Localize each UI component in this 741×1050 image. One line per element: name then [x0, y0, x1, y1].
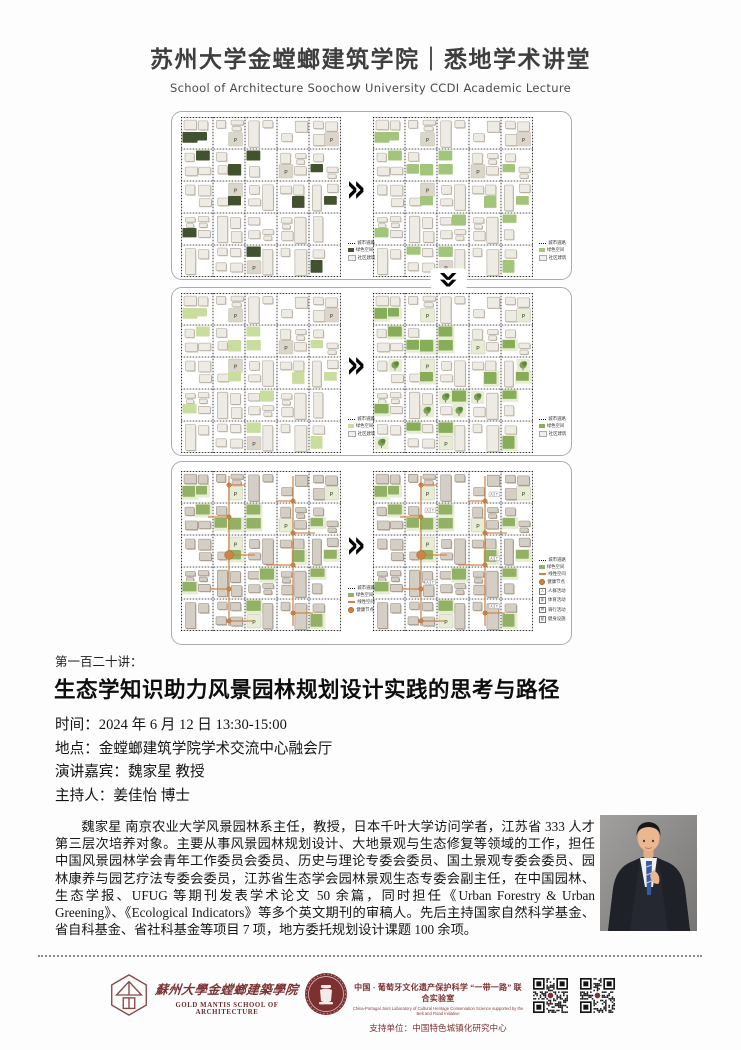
legend-label: 绿色空间 [356, 593, 374, 597]
legend-label: 绿色空间 [356, 424, 374, 428]
legend-building-swatch [539, 255, 547, 261]
stage-down-arrow-icon: » [431, 268, 467, 291]
legend-label: 绿色空间 [547, 565, 565, 569]
svg-text:P: P [284, 524, 288, 530]
legend-label: 骑行活动 [548, 608, 566, 612]
lab-name-cn: 中国 - 葡萄牙文化遗产保护科学 “一带一路” 联合实验室 [352, 982, 524, 1004]
lab-name-en: China-Portugal Joint Laboratory of Cultu… [352, 1006, 524, 1016]
lab-name-block: 中国 - 葡萄牙文化遗产保护科学 “一带一路” 联合实验室 China-Port… [352, 982, 524, 1034]
svg-text:P: P [234, 188, 238, 194]
legend-row-linear: 线性空间 [348, 600, 375, 604]
legend-road-swatch [539, 243, 546, 244]
city-map-after: PPPPP [373, 117, 533, 277]
legend-row-building: 社区建筑 [348, 255, 375, 261]
svg-text:P: P [234, 492, 238, 498]
legend-row-green: 绿色空间 [539, 565, 566, 569]
svg-text:T: T [496, 557, 498, 561]
svg-text:P: P [426, 542, 430, 548]
legend-fitness-swatch: 健 [539, 616, 546, 623]
speaker-bio: 魏家星 南京农业大学风景园林系主任，教授，日本千叶大学访问学者，江苏省 333 … [55, 818, 595, 938]
legend-label: 健身设施 [548, 617, 566, 621]
legend-row-road: 城市道路 [348, 241, 375, 245]
legend-green-swatch [348, 593, 354, 597]
lecture-time: 时间：2024 年 6 月 12 日 13:30-15:00 [55, 714, 332, 738]
legend-row-road: 城市道路 [539, 241, 566, 245]
qr-code-1 [533, 978, 568, 1013]
svg-text:P: P [234, 542, 238, 548]
map-legend: 城市道路绿色空间社区建筑 [348, 417, 375, 437]
legend-road-swatch [348, 419, 355, 420]
svg-text:P: P [284, 346, 288, 352]
svg-text:P: P [330, 138, 334, 144]
legend-label: 线性空间 [548, 572, 566, 576]
city-map-before: PPPPP [181, 117, 341, 277]
legend-green-swatch [348, 248, 354, 252]
legend-people-swatch: 人 [539, 588, 546, 595]
legend-building-swatch [348, 431, 356, 437]
svg-text:P: P [522, 314, 526, 320]
svg-text:P: P [476, 170, 480, 176]
city-map-after: PPPPP [373, 293, 533, 453]
speaker-photo [600, 815, 697, 931]
lecture-speaker: 演讲嘉宾：魏家星 教授 [55, 761, 332, 785]
before-after-arrow-icon: » [334, 345, 378, 384]
school-calligraphy: 蘇州大學金螳螂建築學院 [151, 979, 303, 998]
legend-label: 社区建筑 [358, 432, 376, 436]
svg-text:P: P [330, 492, 334, 498]
svg-text:P: P [444, 442, 448, 448]
school-name-en: GOLD MANTIS SCHOOL OF ARCHITECTURE [152, 1002, 302, 1016]
map-legend: 城市道路绿色空间线性空间健康节点人人群活动体体育活动骑骑行活动健健身设施 [539, 558, 566, 623]
legend-label: 体育活动 [548, 598, 566, 602]
legend-label: 绿色空间 [547, 424, 565, 428]
svg-text:P: P [234, 138, 238, 144]
legend-label: 绿色空间 [547, 248, 565, 252]
map-legend: 城市道路绿色空间线性空间健康节点 [348, 586, 375, 613]
lecture-poster: 苏州大学金螳螂建筑学院｜悉地学术讲堂 School of Architectur… [0, 0, 741, 1050]
legend-building-swatch [539, 431, 547, 437]
legend-label: 城市道路 [357, 241, 375, 245]
legend-row-road: 城市道路 [348, 586, 375, 590]
map-legend: 城市道路绿色空间社区建筑 [348, 241, 375, 261]
legend-linear-swatch [348, 601, 355, 603]
legend-row-green: 绿色空间 [348, 424, 375, 428]
svg-text:P: P [234, 314, 238, 320]
legend-row-building: 社区建筑 [539, 255, 566, 261]
legend-label: 社区建筑 [358, 256, 376, 260]
legend-row-people: 人人群活动 [539, 588, 566, 595]
lecture-series-number: 第一百二十讲： [55, 651, 143, 670]
legend-row-node: 健康节点 [539, 579, 566, 585]
svg-text:P: P [252, 442, 256, 448]
svg-text:T: T [496, 605, 498, 609]
city-map-before: PPPPP [181, 471, 341, 631]
legend-row-fitness: 健健身设施 [539, 616, 566, 623]
legend-green-swatch [539, 248, 545, 252]
diagram-panel-stage-1: PPPPP城市道路绿色空间社区建筑PPPPP城市道路绿色空间社区建筑» [171, 111, 572, 280]
svg-text:T: T [496, 493, 498, 497]
legend-node-swatch [348, 607, 354, 613]
lecture-place: 地点：金螳螂建筑学院学术交流中心融会厅 [55, 738, 332, 762]
page-subtitle: School of Architecture Soochow Universit… [0, 81, 741, 95]
legend-label: 城市道路 [548, 241, 566, 245]
legend-row-green: 绿色空间 [348, 593, 375, 597]
diagram-panel-stage-2: PPPPP城市道路绿色空间社区建筑PPPPP城市道路绿色空间社区建筑» [171, 287, 572, 456]
legend-ride-swatch: 骑 [539, 607, 546, 614]
legend-label: 人群活动 [548, 589, 566, 593]
svg-text:P: P [426, 492, 430, 498]
svg-text:P: P [330, 314, 334, 320]
lecture-host: 主持人：姜佳怡 博士 [55, 785, 332, 809]
svg-text:P: P [476, 524, 480, 530]
legend-label: 社区建筑 [549, 256, 567, 260]
legend-label: 城市道路 [548, 558, 566, 562]
legend-row-road: 城市道路 [539, 417, 566, 421]
svg-text:T: T [432, 581, 434, 585]
svg-text:P: P [426, 314, 430, 320]
legend-label: 线性空间 [357, 600, 375, 604]
svg-text:P: P [234, 364, 238, 370]
legend-row-building: 社区建筑 [539, 431, 566, 437]
legend-row-road: 城市道路 [348, 417, 375, 421]
city-map-before: PPPPP [181, 293, 341, 453]
map-legend: 城市道路绿色空间社区建筑 [539, 417, 566, 437]
legend-row-building: 社区建筑 [348, 431, 375, 437]
svg-text:P: P [426, 138, 430, 144]
svg-text:P: P [284, 170, 288, 176]
city-map-after: PPPPP人T人T人T人T人T [373, 471, 533, 631]
svg-text:P: P [252, 266, 256, 272]
legend-label: 社区建筑 [549, 432, 567, 436]
legend-row-green: 绿色空间 [348, 248, 375, 252]
legend-road-swatch [539, 560, 546, 561]
legend-green-swatch [539, 565, 545, 569]
svg-text:P: P [522, 492, 526, 498]
poster-header: 苏州大学金螳螂建筑学院｜悉地学术讲堂 School of Architectur… [0, 40, 741, 95]
legend-row-linear: 线性空间 [539, 572, 566, 576]
qr-code-2 [580, 978, 615, 1013]
legend-row-sport: 体体育活动 [539, 597, 566, 604]
lecture-title: 生态学知识助力风景园林规划设计实践的思考与路径 [54, 673, 560, 704]
legend-label: 城市道路 [357, 586, 375, 590]
legend-road-swatch [539, 419, 546, 420]
lecture-info: 时间：2024 年 6 月 12 日 13:30-15:00 地点：金螳螂建筑学… [55, 714, 332, 808]
diagram-panel-stage-3: PPPPP城市道路绿色空间线性空间健康节点PPPPP人T人T人T人T人T城市道路… [171, 461, 572, 645]
legend-building-swatch [348, 255, 356, 261]
legend-label: 城市道路 [357, 417, 375, 421]
legend-row-green: 绿色空间 [539, 248, 566, 252]
legend-sport-swatch: 体 [539, 597, 546, 604]
legend-green-swatch [348, 424, 354, 428]
legend-row-road: 城市道路 [539, 558, 566, 562]
before-after-arrow-icon: » [334, 525, 378, 564]
legend-linear-swatch [539, 573, 546, 575]
svg-text:T: T [432, 509, 434, 513]
legend-label: 绿色空间 [356, 248, 374, 252]
legend-row-ride: 骑骑行活动 [539, 607, 566, 614]
map-legend: 城市道路绿色空间社区建筑 [539, 241, 566, 261]
support-unit: 支持单位：中国特色城镇化研究中心 [352, 1022, 524, 1034]
before-after-arrow-icon: » [334, 169, 378, 208]
legend-node-swatch [539, 579, 545, 585]
legend-label: 城市道路 [548, 417, 566, 421]
legend-row-green: 绿色空间 [539, 424, 566, 428]
svg-text:P: P [426, 188, 430, 194]
svg-text:P: P [476, 346, 480, 352]
legend-label: 健康节点 [547, 580, 565, 584]
school-hexagon-logo-icon [106, 972, 152, 1018]
legend-green-swatch [539, 424, 545, 428]
legend-label: 健康节点 [356, 608, 374, 612]
lab-seal-icon [304, 972, 348, 1016]
svg-text:P: P [522, 138, 526, 144]
footer-divider [38, 955, 702, 957]
svg-text:P: P [426, 364, 430, 370]
legend-road-swatch [348, 588, 355, 589]
school-name-block: 蘇州大學金螳螂建築學院 GOLD MANTIS SCHOOL OF ARCHIT… [152, 979, 302, 1016]
page-title: 苏州大学金螳螂建筑学院｜悉地学术讲堂 [0, 40, 741, 74]
legend-road-swatch [348, 243, 355, 244]
legend-row-node: 健康节点 [348, 607, 375, 613]
